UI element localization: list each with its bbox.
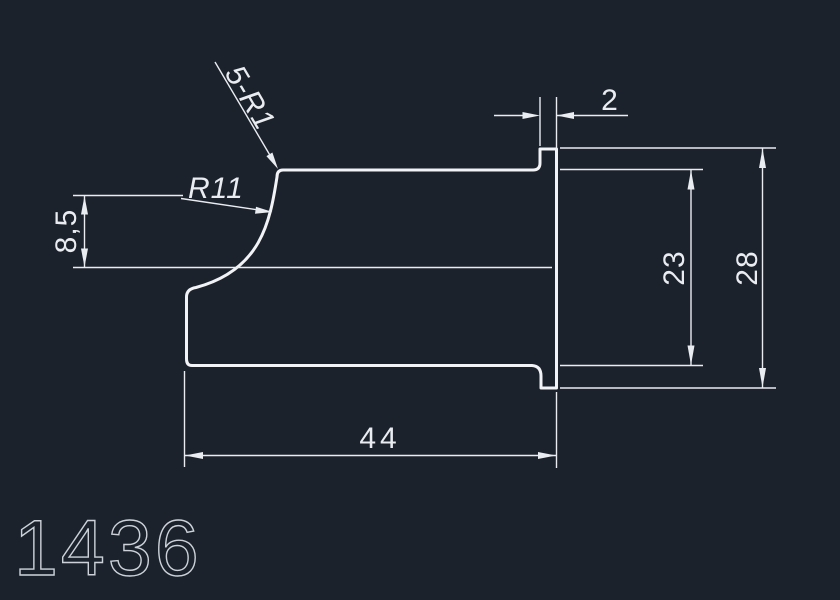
dimension-text-overall-height: 28 bbox=[731, 250, 764, 285]
drawing-number-text[interactable]: 1436 bbox=[14, 503, 202, 592]
dimension-text-inner-height: 23 bbox=[658, 250, 691, 285]
dimension-text-flange-width: 2 bbox=[601, 84, 619, 117]
leader-text-radius-note: R11 bbox=[188, 172, 244, 205]
dimension-text-overall-length: 44 bbox=[359, 422, 400, 455]
cad-drawing-canvas[interactable]: 8,5 2 23 28 44 bbox=[0, 0, 840, 600]
dimension-text-cove-height: 8,5 bbox=[50, 209, 83, 254]
